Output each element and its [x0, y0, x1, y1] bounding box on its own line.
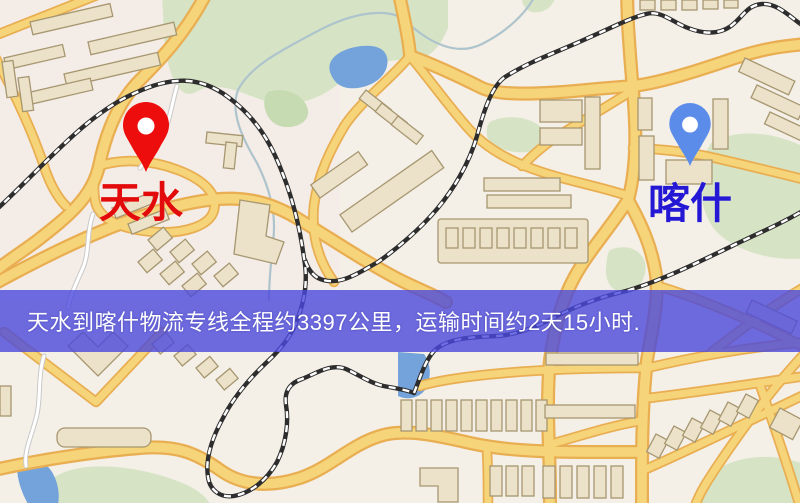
origin-label: 天水 — [99, 180, 184, 227]
destination-label: 喀什 — [648, 181, 732, 228]
map-canvas[interactable]: 天水 喀什 — [0, 0, 800, 503]
destination-pin-hole — [682, 117, 698, 133]
map-screenshot: 天水 喀什 天水到喀什物流专线全程约3397公里，运输时间约2天15小时. — [0, 0, 800, 503]
origin-pin-hole — [138, 118, 155, 135]
route-info-banner: 天水到喀什物流专线全程约3397公里，运输时间约2天15小时. — [0, 290, 800, 352]
route-info-text: 天水到喀什物流专线全程约3397公里，运输时间约2天15小时. — [0, 305, 640, 337]
